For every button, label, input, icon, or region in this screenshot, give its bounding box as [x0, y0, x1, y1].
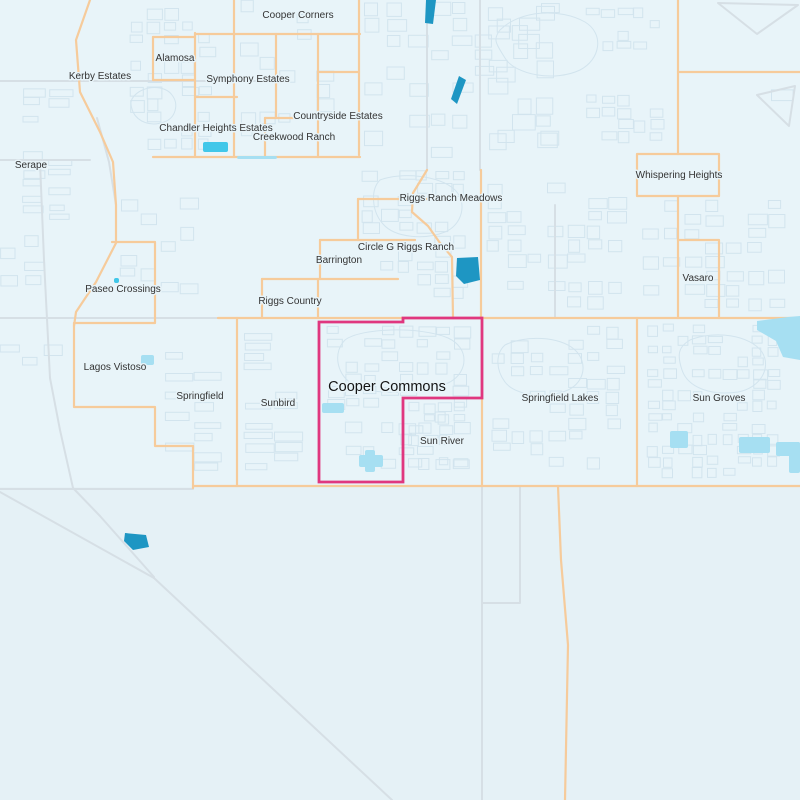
water-body — [322, 403, 344, 413]
neighborhood-label[interactable]: Symphony Estates — [206, 74, 289, 85]
neighborhood-label[interactable]: Paseo Crossings — [85, 284, 161, 295]
neighborhood-label[interactable]: Serape — [15, 160, 48, 171]
water-body — [203, 142, 228, 152]
map-background-lower — [0, 487, 800, 800]
neighborhood-label[interactable]: Circle G Riggs Ranch — [358, 242, 454, 253]
neighborhood-label[interactable]: Springfield — [176, 391, 223, 402]
neighborhood-label[interactable]: Springfield Lakes — [522, 393, 599, 404]
neighborhood-label[interactable]: Vasaro — [683, 273, 714, 284]
map-viewport[interactable]: Cooper CornersAlamosaKerby EstatesSympho… — [0, 0, 800, 800]
neighborhood-label[interactable]: Creekwood Ranch — [253, 132, 335, 143]
neighborhood-label[interactable]: Riggs Country — [258, 296, 321, 307]
water-body — [739, 437, 770, 453]
map-canvas[interactable]: Cooper CornersAlamosaKerby EstatesSympho… — [0, 0, 800, 800]
neighborhood-label[interactable]: Sunbird — [261, 398, 295, 409]
neighborhood-label[interactable]: Lagos Vistoso — [84, 362, 147, 373]
water-body — [789, 442, 800, 473]
selected-neighborhood-label[interactable]: Cooper Commons — [328, 379, 446, 395]
neighborhood-label[interactable]: Whispering Heights — [636, 170, 723, 181]
neighborhood-label[interactable]: Alamosa — [156, 53, 195, 64]
neighborhood-label[interactable]: Barrington — [316, 255, 362, 266]
water-body — [365, 450, 375, 472]
neighborhood-label[interactable]: Kerby Estates — [69, 71, 131, 82]
neighborhood-label[interactable]: Sun River — [420, 436, 465, 447]
neighborhood-label[interactable]: Riggs Ranch Meadows — [400, 193, 503, 204]
water-body — [670, 431, 688, 448]
water-body — [114, 278, 119, 283]
neighborhood-label[interactable]: Sun Groves — [693, 393, 746, 404]
neighborhood-label[interactable]: Cooper Corners — [262, 10, 333, 21]
neighborhood-label[interactable]: Countryside Estates — [293, 111, 383, 122]
water-body — [237, 156, 277, 159]
